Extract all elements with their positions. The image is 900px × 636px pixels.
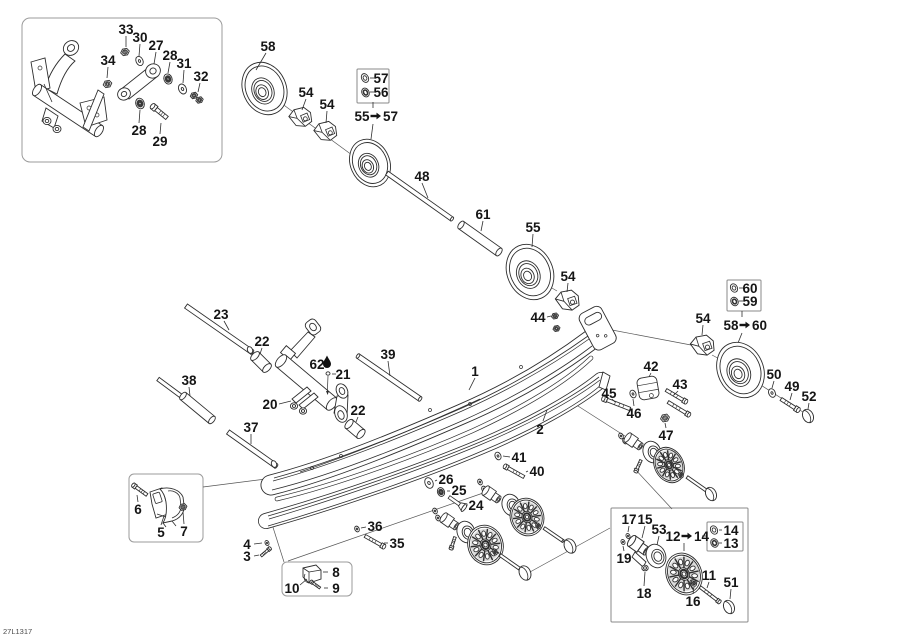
svg-text:29: 29 xyxy=(152,134,167,149)
svg-text:44: 44 xyxy=(530,310,546,325)
svg-text:12: 12 xyxy=(665,529,680,544)
svg-text:62: 62 xyxy=(309,357,324,372)
svg-text:42: 42 xyxy=(643,359,658,374)
svg-text:40: 40 xyxy=(529,464,544,479)
svg-text:35: 35 xyxy=(389,536,405,551)
svg-text:16: 16 xyxy=(685,594,701,609)
svg-text:55: 55 xyxy=(354,109,370,124)
svg-text:50: 50 xyxy=(766,367,781,382)
svg-text:54: 54 xyxy=(695,311,711,326)
svg-text:36: 36 xyxy=(367,519,383,534)
svg-text:37: 37 xyxy=(243,420,258,435)
svg-text:46: 46 xyxy=(626,406,642,421)
svg-text:20: 20 xyxy=(262,397,277,412)
svg-text:49: 49 xyxy=(784,379,799,394)
svg-text:57: 57 xyxy=(373,71,388,86)
svg-text:18: 18 xyxy=(636,586,652,601)
svg-text:10: 10 xyxy=(284,581,299,596)
svg-text:51: 51 xyxy=(723,575,739,590)
svg-text:47: 47 xyxy=(658,428,673,443)
svg-text:60: 60 xyxy=(752,318,767,333)
svg-text:3: 3 xyxy=(243,549,251,564)
svg-text:54: 54 xyxy=(319,97,335,112)
svg-text:41: 41 xyxy=(511,450,527,465)
svg-text:22: 22 xyxy=(254,334,269,349)
svg-text:38: 38 xyxy=(181,373,197,388)
svg-text:9: 9 xyxy=(332,581,340,596)
svg-text:13: 13 xyxy=(723,536,739,551)
svg-text:30: 30 xyxy=(132,30,147,45)
svg-text:8: 8 xyxy=(332,565,340,580)
svg-text:54: 54 xyxy=(560,269,576,284)
svg-text:48: 48 xyxy=(414,169,430,184)
svg-text:23: 23 xyxy=(213,307,229,322)
svg-text:27L1317: 27L1317 xyxy=(3,627,32,636)
svg-text:34: 34 xyxy=(100,53,116,68)
svg-text:61: 61 xyxy=(475,207,491,222)
svg-text:11: 11 xyxy=(702,568,717,583)
svg-text:32: 32 xyxy=(193,69,208,84)
svg-text:21: 21 xyxy=(335,367,351,382)
svg-text:58: 58 xyxy=(260,39,276,54)
svg-text:31: 31 xyxy=(176,56,192,71)
svg-text:43: 43 xyxy=(672,377,688,392)
svg-text:59: 59 xyxy=(742,294,757,309)
svg-text:22: 22 xyxy=(350,403,365,418)
svg-text:45: 45 xyxy=(601,386,617,401)
svg-text:19: 19 xyxy=(616,551,631,566)
svg-text:1: 1 xyxy=(471,364,479,379)
svg-text:28: 28 xyxy=(131,123,147,138)
svg-text:17: 17 xyxy=(621,512,636,527)
svg-text:5: 5 xyxy=(157,525,165,540)
svg-text:54: 54 xyxy=(298,85,314,100)
svg-text:52: 52 xyxy=(801,389,816,404)
svg-text:39: 39 xyxy=(380,347,395,362)
svg-text:24: 24 xyxy=(468,498,484,513)
svg-text:6: 6 xyxy=(134,502,142,517)
svg-text:7: 7 xyxy=(180,524,188,539)
svg-text:58: 58 xyxy=(723,318,739,333)
svg-text:57: 57 xyxy=(383,109,398,124)
svg-text:2: 2 xyxy=(536,422,544,437)
svg-text:27: 27 xyxy=(148,38,163,53)
svg-text:14: 14 xyxy=(694,529,710,544)
svg-text:25: 25 xyxy=(451,483,467,498)
svg-text:56: 56 xyxy=(373,85,389,100)
svg-text:55: 55 xyxy=(525,220,541,235)
